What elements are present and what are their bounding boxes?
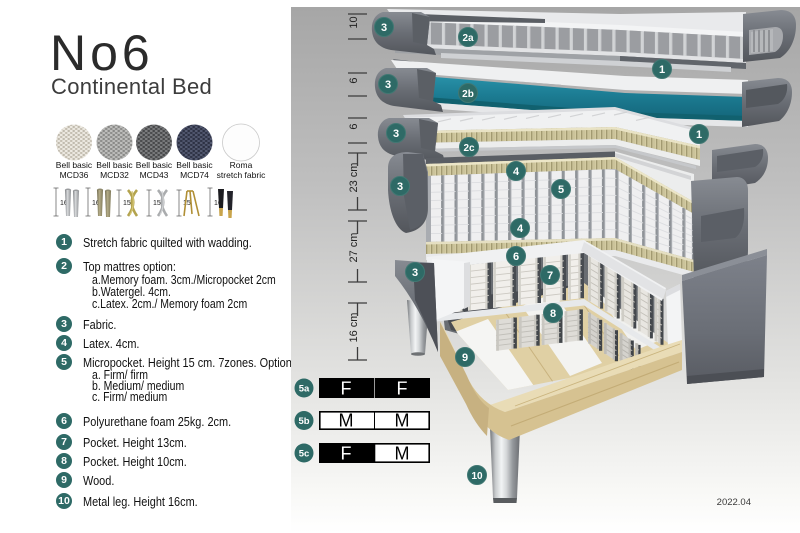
svg-text:2a: 2a [462,33,474,44]
svg-text:M: M [395,444,410,464]
svg-text:8: 8 [550,308,556,320]
svg-text:16 cm: 16 cm [348,313,360,343]
svg-text:15: 15 [153,200,161,207]
svg-text:2b: 2b [462,89,474,100]
svg-text:M: M [395,411,410,431]
svg-text:1: 1 [696,129,702,141]
svg-text:5: 5 [558,184,564,196]
svg-text:3: 3 [397,181,403,193]
svg-text:2c: 2c [463,143,475,154]
svg-text:3: 3 [393,128,399,140]
svg-text:2022.04: 2022.04 [717,497,751,508]
svg-text:5c: 5c [299,448,310,459]
svg-text:1: 1 [659,64,665,76]
svg-text:6: 6 [348,77,360,83]
svg-text:27 cm: 27 cm [348,233,360,263]
svg-text:4: 4 [513,166,520,178]
svg-text:10: 10 [348,16,360,28]
svg-text:F: F [397,379,408,399]
svg-text:10: 10 [471,471,483,482]
svg-text:9: 9 [462,352,468,364]
svg-text:3: 3 [381,22,387,34]
svg-text:5a: 5a [299,383,310,394]
svg-text:3: 3 [385,79,391,91]
svg-text:6: 6 [513,251,519,263]
svg-text:15: 15 [123,200,131,207]
svg-text:5b: 5b [298,416,309,427]
svg-text:4: 4 [517,223,524,235]
svg-text:15: 15 [183,200,191,207]
svg-text:F: F [341,444,352,464]
svg-text:23 cm: 23 cm [348,163,360,193]
svg-text:6: 6 [348,123,360,129]
svg-text:3: 3 [412,267,418,279]
svg-text:M: M [339,411,354,431]
svg-text:F: F [341,379,352,399]
svg-text:7: 7 [547,270,553,282]
